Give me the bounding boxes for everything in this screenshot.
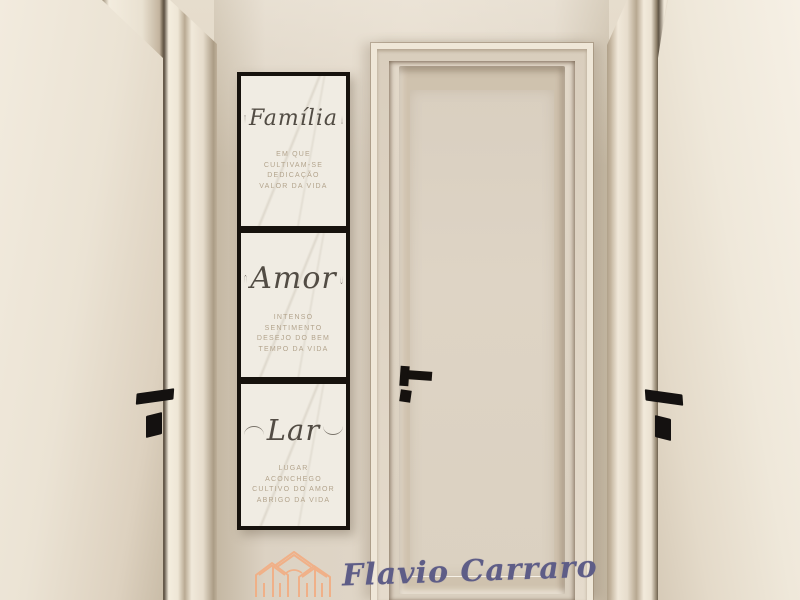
flourish-line-left <box>244 275 247 284</box>
art-word-lar: Lar <box>267 416 320 445</box>
art-caption-line: TEMPO DA VIDA <box>241 345 346 356</box>
left-door <box>0 0 165 600</box>
art-caption-line: CULTIVO DO AMOR <box>241 485 346 496</box>
art-word-familia: Família <box>249 108 338 130</box>
art-caption-line: VALOR DA VIDA <box>241 182 346 193</box>
flourish-line-left <box>244 115 246 124</box>
art-caption-line: DEDICAÇÃO <box>241 171 346 182</box>
art-captions: LUGAR ACONCHEGO CULTIVO DO AMOR ABRIGO D… <box>241 464 346 506</box>
hallway-scene: Família EM QUE CULTIVAM-SE DEDICAÇÃO VAL… <box>0 0 800 600</box>
flourish-line-right <box>341 115 343 124</box>
art-caption-line: INTENSO <box>241 313 346 324</box>
art-caption-line: DESEJO DO BEM <box>241 334 346 345</box>
right-door-handle-plate <box>655 415 671 441</box>
art-caption-line: ACONCHEGO <box>241 475 346 486</box>
center-door-handle-lever <box>407 370 433 381</box>
art-word-row: Amor <box>241 259 346 299</box>
center-door-frame <box>371 43 593 600</box>
art-caption-line: ABRIGO DA VIDA <box>241 496 346 507</box>
art-word-amor: Amor <box>250 264 337 294</box>
center-door-panel-recess <box>410 90 554 576</box>
right-door <box>655 0 800 600</box>
flourish-line-right <box>323 426 343 435</box>
center-door-slab <box>389 61 575 600</box>
flourish-line-right <box>340 275 343 284</box>
art-captions: EM QUE CULTIVAM-SE DEDICAÇÃO VALOR DA VI… <box>241 150 346 192</box>
center-door-frame-step <box>377 49 587 600</box>
center-door-lock <box>399 389 412 402</box>
art-captions: INTENSO SENTIMENTO DESEJO DO BEM TEMPO D… <box>241 313 346 355</box>
wall-art-frame: Família EM QUE CULTIVAM-SE DEDICAÇÃO VAL… <box>237 72 350 530</box>
wall-art-panel-lar: Lar LUGAR ACONCHEGO CULTIVO DO AMOR ABRI… <box>241 384 346 526</box>
house-outline-icon <box>252 545 334 599</box>
center-door-panel-molding <box>399 66 565 594</box>
art-caption-line: SENTIMENTO <box>241 324 346 335</box>
art-word-row: Família <box>241 102 346 136</box>
art-caption-line: EM QUE <box>241 150 346 161</box>
left-door-handle-plate <box>146 412 162 438</box>
art-caption-line: LUGAR <box>241 464 346 475</box>
wall-art-panel-amor: Amor INTENSO SENTIMENTO DESEJO DO BEM TE… <box>241 233 346 377</box>
watermark: Flavio Carraro <box>252 543 552 600</box>
wall-art-panel-familia: Família EM QUE CULTIVAM-SE DEDICAÇÃO VAL… <box>241 76 346 226</box>
flourish-line-left <box>244 426 264 435</box>
art-caption-line: CULTIVAM-SE <box>241 161 346 172</box>
art-word-row: Lar <box>241 410 346 450</box>
